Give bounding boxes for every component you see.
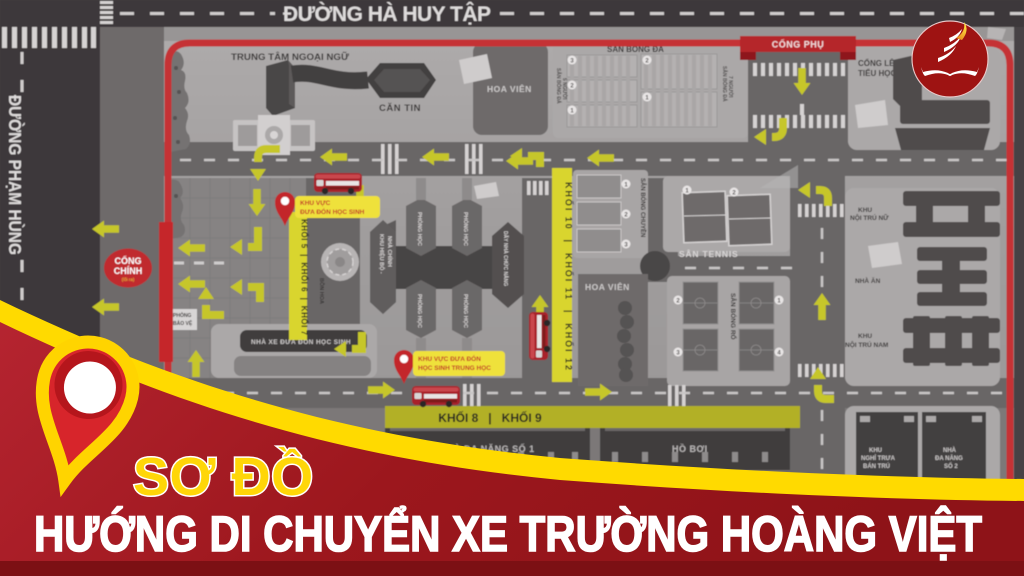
svg-text:NHÀ: NHÀ <box>943 447 957 454</box>
svg-text:CĂN TIN: CĂN TIN <box>379 103 421 114</box>
svg-text:HƯỚNG DI CHUYỂN XE TRƯỜNG HOÀN: HƯỚNG DI CHUYỂN XE TRƯỜNG HOÀNG VIỆT <box>34 506 982 562</box>
svg-text:ĐƯỜNG HÀ HUY TẬP: ĐƯỜNG HÀ HUY TẬP <box>283 2 493 26</box>
svg-text:(lối ra): (lối ra) <box>122 277 135 282</box>
svg-text:KHU: KHU <box>869 448 882 454</box>
svg-text:TIỂU HỌC: TIỂU HỌC <box>858 69 896 78</box>
svg-text:ĐƯỜNG PHẠM HÙNG: ĐƯỜNG PHẠM HÙNG <box>5 95 26 255</box>
svg-text:HỒ BƠI: HỒ BƠI <box>672 443 708 454</box>
svg-text:KHỐI 5 | KHỐI 6 | KHỐI 7: KHỐI 5 | KHỐI 6 | KHỐI 7 <box>300 219 310 336</box>
svg-text:CỔNG PHỤ: CỔNG PHỤ <box>772 39 825 50</box>
svg-text:CHÍNH: CHÍNH <box>114 266 143 276</box>
svg-text:PHÒNG HỌC: PHÒNG HỌC <box>462 212 470 246</box>
svg-text:KHỐI 8 | KHỐI 9: KHỐI 8 | KHỐI 9 <box>438 410 542 425</box>
svg-text:DÃY NHÀ CHỨC NĂNG: DÃY NHÀ CHỨC NĂNG <box>502 231 509 286</box>
svg-text:CỔNG: CỔNG <box>115 255 142 266</box>
svg-text:KHU: KHU <box>858 333 872 340</box>
svg-text:PHÒNG HỌC: PHÒNG HỌC <box>462 294 470 328</box>
svg-text:BẢO VỆ: BẢO VỆ <box>173 319 193 327</box>
svg-text:KHU VỰC ĐƯA ĐÓN: KHU VỰC ĐƯA ĐÓN <box>418 354 481 363</box>
svg-text:5 NGƯỜI: 5 NGƯỜI <box>561 78 569 100</box>
svg-text:HOA VIÊN: HOA VIÊN <box>487 83 532 94</box>
svg-text:NỘI TRÚ NỮ: NỘI TRÚ NỮ <box>850 213 889 222</box>
svg-text:PHÒNG: PHÒNG <box>173 311 191 319</box>
svg-text:7 NGƯỜI: 7 NGƯỜI <box>727 76 735 98</box>
svg-text:SÂN BÓNG CHUYỀN: SÂN BÓNG CHUYỀN <box>639 178 647 237</box>
svg-text:HOA VIÊN: HOA VIÊN <box>585 281 630 292</box>
svg-text:TRUNG TÂM NGOẠI NGỮ: TRUNG TÂM NGOẠI NGỮ <box>231 51 349 63</box>
svg-text:SÂN BÓNG RỔ: SÂN BÓNG RỔ <box>729 293 738 340</box>
svg-text:BÁN TRÚ: BÁN TRÚ <box>863 463 890 470</box>
svg-text:HỌC SINH TRUNG HỌC: HỌC SINH TRUNG HỌC <box>418 365 491 372</box>
svg-text:PHÒNG HỌC: PHÒNG HỌC <box>416 294 424 328</box>
svg-text:BỒN HOA: BỒN HOA <box>318 278 325 304</box>
svg-text:SƠ ĐỒ: SƠ ĐỒ <box>133 447 314 507</box>
svg-text:KHU: KHU <box>858 207 872 214</box>
svg-text:NHÀ CHÍNH: NHÀ CHÍNH <box>386 236 394 267</box>
svg-text:NGHỈ TRƯA: NGHỈ TRƯA <box>861 455 896 462</box>
svg-text:ĐƯA ĐÓN HỌC SINH: ĐƯA ĐÓN HỌC SINH <box>300 207 365 216</box>
svg-text:KHỐI 10 | KHỐI 11 | KHỐI 1: KHỐI 10 | KHỐI 11 | KHỐI 12 <box>564 182 575 370</box>
svg-text:NỘI TRÚ NAM: NỘI TRÚ NAM <box>845 340 888 349</box>
svg-text:KHU VỰC: KHU VỰC <box>300 200 331 207</box>
svg-text:NHÀ ĂN: NHÀ ĂN <box>855 276 881 285</box>
svg-text:KHU HIỆU BỘ -: KHU HIỆU BỘ - <box>378 234 386 274</box>
svg-text:SÂN TENNIS: SÂN TENNIS <box>679 248 738 259</box>
svg-text:PHÒNG HỌC: PHÒNG HỌC <box>416 212 424 246</box>
svg-text:SỐ 2: SỐ 2 <box>944 463 958 470</box>
svg-text:ĐA NĂNG: ĐA NĂNG <box>935 455 963 462</box>
